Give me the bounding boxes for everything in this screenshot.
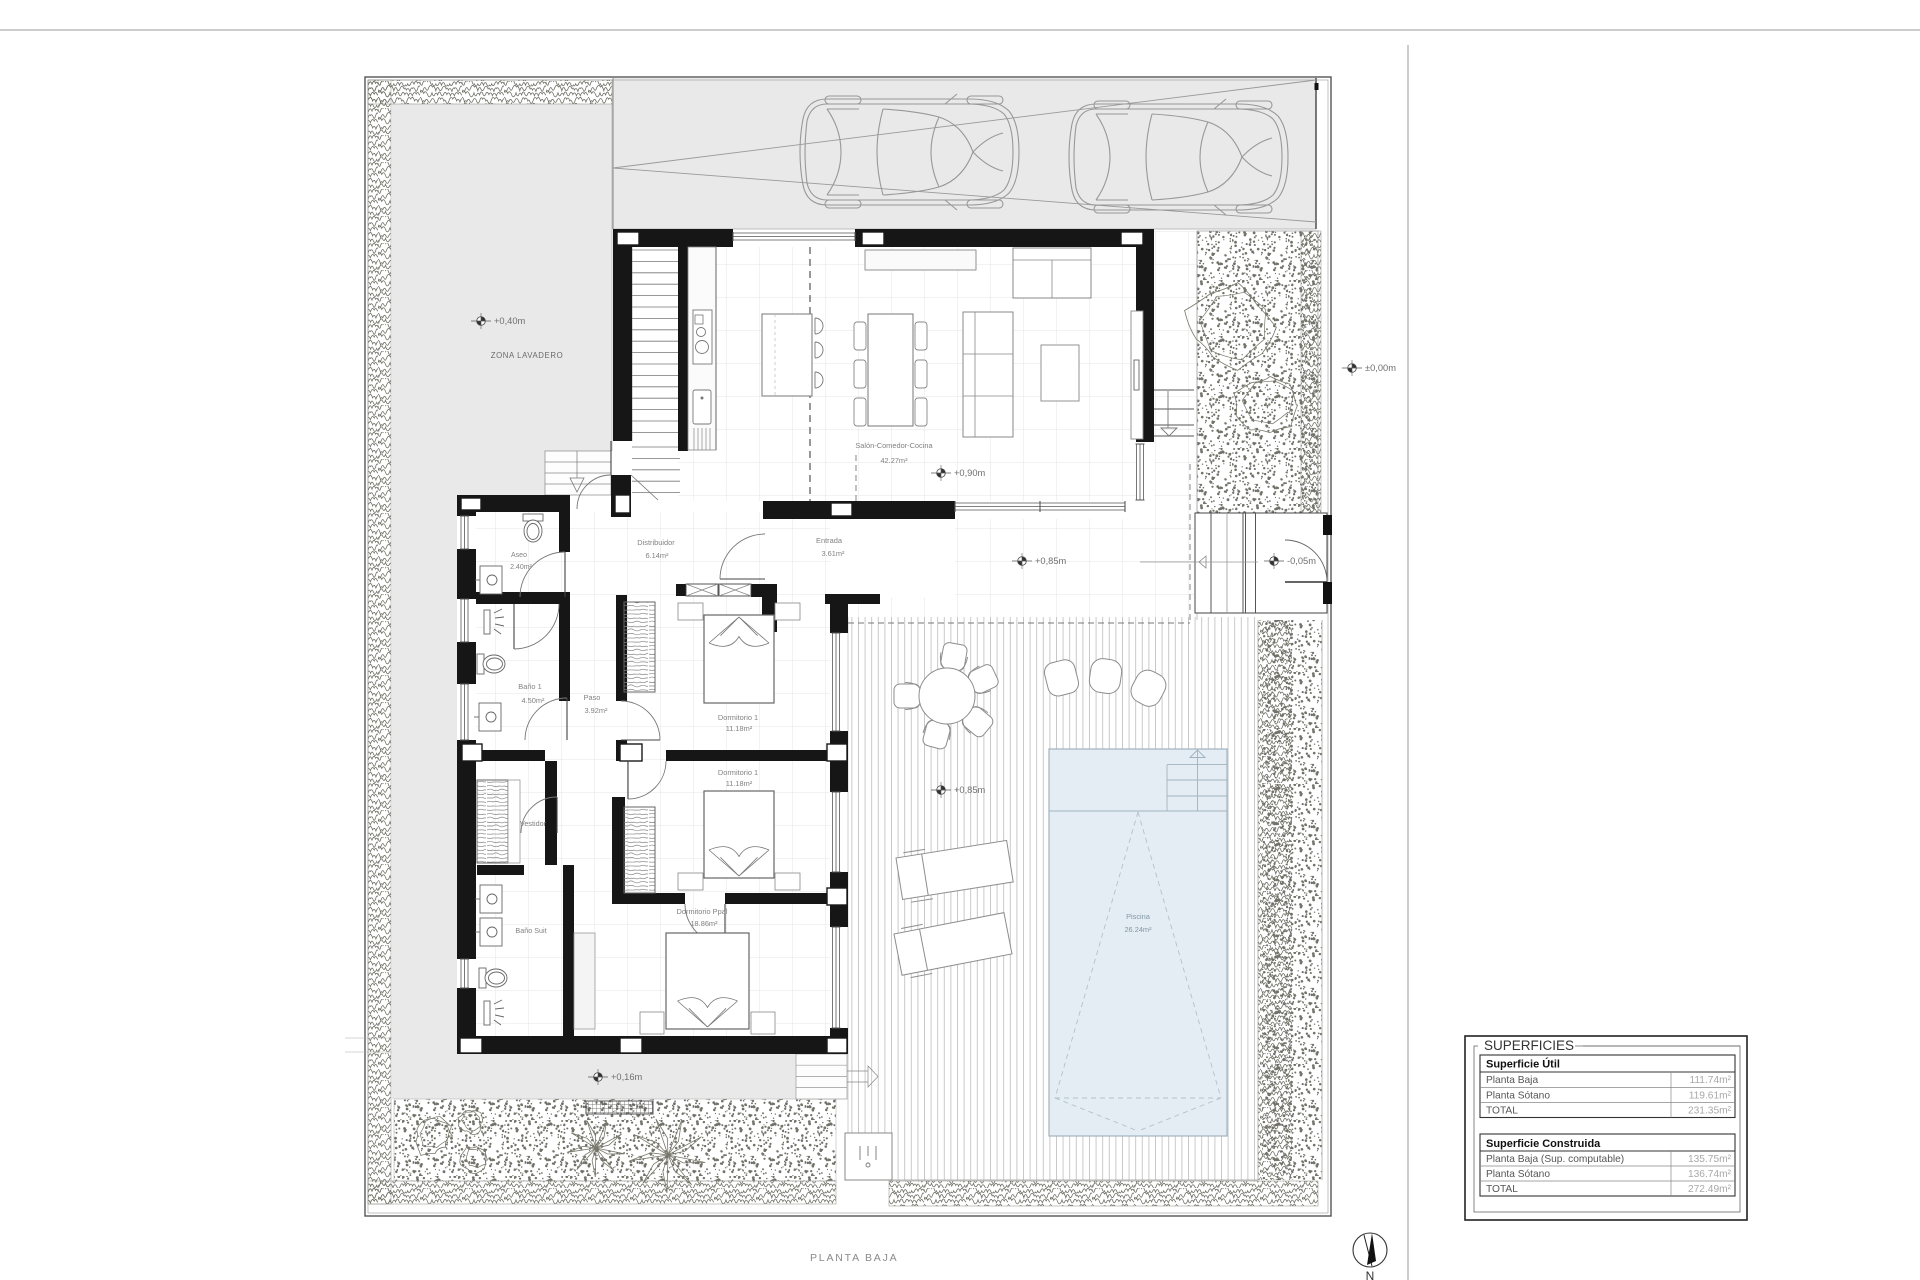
svg-text:Aseo: Aseo — [511, 552, 527, 559]
svg-text:111.74m²: 111.74m² — [1689, 1075, 1731, 1086]
svg-text:TOTAL: TOTAL — [1486, 1106, 1518, 1117]
svg-text:Vestidor: Vestidor — [520, 819, 547, 828]
svg-text:Salón-Comedor-Cocina: Salón-Comedor-Cocina — [855, 441, 933, 450]
svg-text:-0,05m: -0,05m — [1287, 556, 1316, 566]
svg-text:Superficie Construida: Superficie Construida — [1486, 1138, 1601, 1150]
svg-text:ZONA LAVADERO: ZONA LAVADERO — [491, 351, 564, 360]
svg-text:N: N — [1366, 1269, 1375, 1280]
svg-text:4.50m²: 4.50m² — [521, 696, 545, 705]
svg-text:3.92m²: 3.92m² — [584, 706, 608, 715]
svg-text:SUPERFICIES: SUPERFICIES — [1484, 1038, 1574, 1053]
svg-text:272.49m²: 272.49m² — [1688, 1184, 1732, 1195]
svg-text:136.74m²: 136.74m² — [1688, 1169, 1732, 1180]
svg-text:+0,40m: +0,40m — [494, 316, 526, 326]
svg-text:231.35m²: 231.35m² — [1688, 1106, 1732, 1117]
svg-text:PLANTA BAJA: PLANTA BAJA — [810, 1252, 898, 1264]
svg-text:2.40m²: 2.40m² — [510, 564, 532, 571]
svg-text:Planta Sótano: Planta Sótano — [1486, 1091, 1550, 1102]
svg-text:Baño 1: Baño 1 — [518, 682, 541, 691]
svg-text:11.18m²: 11.18m² — [726, 724, 753, 733]
svg-text:Baño Suit: Baño Suit — [515, 926, 546, 935]
svg-text:26.24m²: 26.24m² — [1124, 925, 1152, 934]
svg-text:119.61m²: 119.61m² — [1689, 1091, 1732, 1102]
svg-text:11.18m²: 11.18m² — [726, 779, 753, 788]
svg-text:Dormitorio 1: Dormitorio 1 — [718, 713, 758, 722]
svg-text:3.61m²: 3.61m² — [821, 549, 845, 558]
svg-text:Dormitorio Ppal: Dormitorio Ppal — [677, 907, 728, 916]
svg-text:Superficie Útil: Superficie Útil — [1486, 1058, 1560, 1071]
svg-text:42.27m²: 42.27m² — [880, 456, 908, 465]
svg-text:Dormitorio 1: Dormitorio 1 — [718, 768, 758, 777]
svg-text:Planta Baja (Sup. computable): Planta Baja (Sup. computable) — [1486, 1154, 1624, 1165]
svg-text:135.75m²: 135.75m² — [1688, 1154, 1732, 1165]
svg-text:+0,85m: +0,85m — [954, 785, 986, 795]
svg-text:+0,16m: +0,16m — [611, 1072, 643, 1082]
svg-text:TOTAL: TOTAL — [1486, 1184, 1518, 1195]
svg-text:Planta Sótano: Planta Sótano — [1486, 1169, 1550, 1180]
svg-text:±0,00m: ±0,00m — [1365, 363, 1396, 373]
svg-text:18.86m²: 18.86m² — [690, 919, 718, 928]
svg-text:6.14m²: 6.14m² — [645, 551, 669, 560]
svg-text:Planta Baja: Planta Baja — [1486, 1075, 1538, 1086]
svg-text:Piscina: Piscina — [1126, 912, 1151, 921]
svg-text:Paso: Paso — [584, 693, 601, 702]
svg-text:Distribuidor: Distribuidor — [637, 538, 675, 547]
svg-text:+0,85m: +0,85m — [1035, 556, 1067, 566]
svg-text:Entrada: Entrada — [816, 536, 843, 545]
svg-text:+0,90m: +0,90m — [954, 468, 986, 478]
